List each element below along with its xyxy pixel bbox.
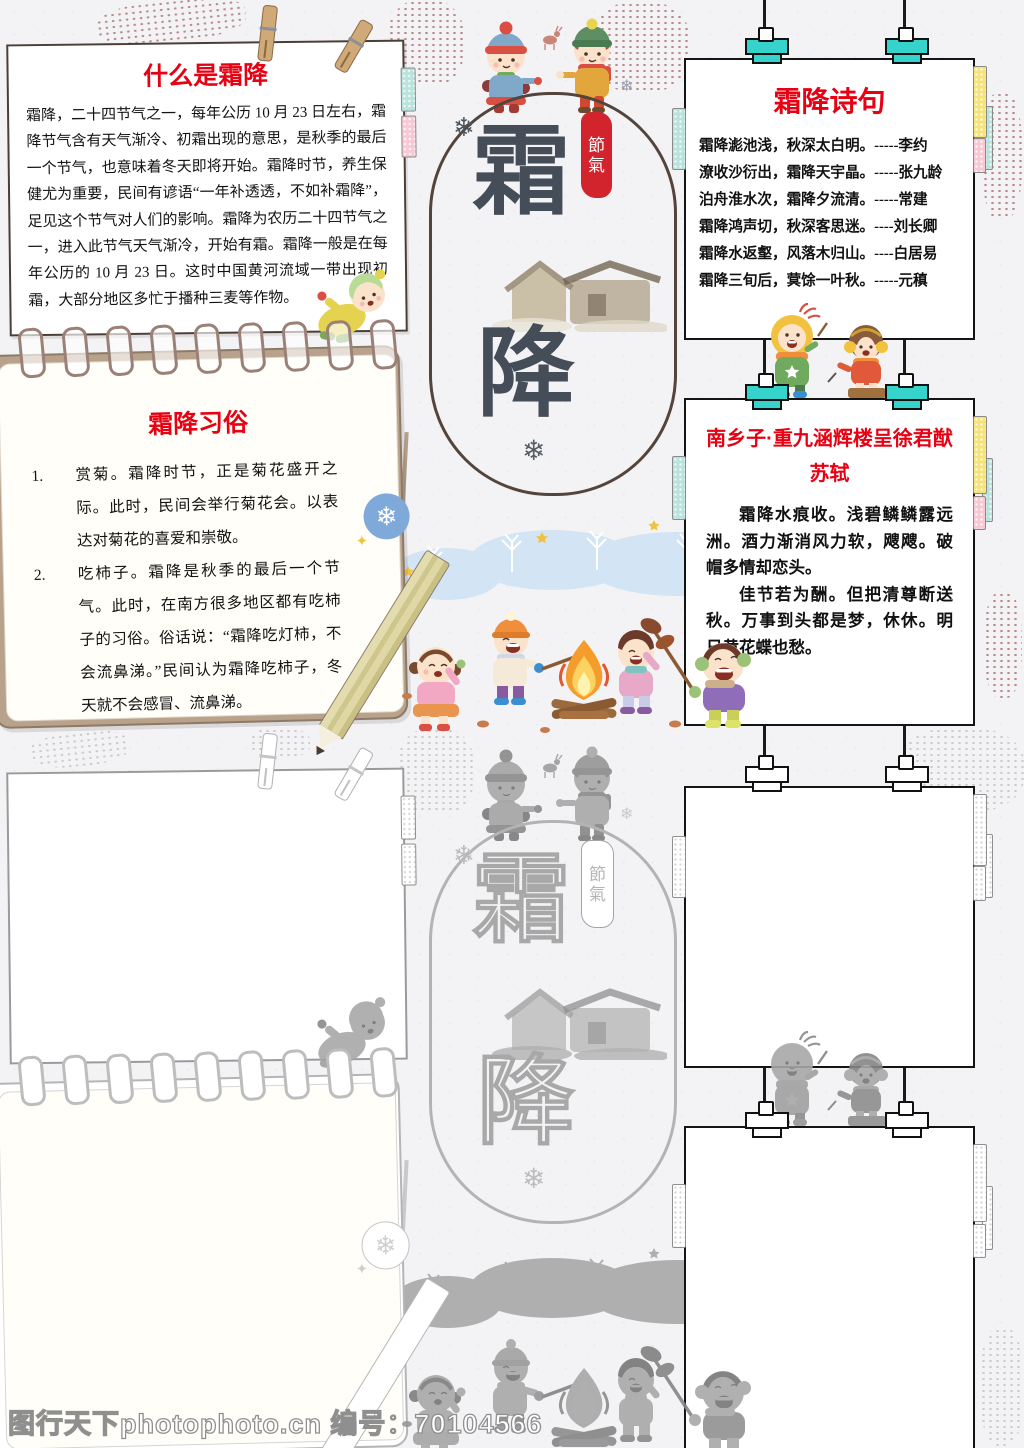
title-char-jiang: 降 — [477, 324, 575, 422]
poems-title: 霜降诗句 — [686, 80, 973, 120]
binder-clip-icon — [885, 384, 929, 401]
teal-tab — [672, 456, 686, 520]
shuangjiang-poster: ❄ ❄ ❄ 什么是霜降 霜降，二十四节气之一，每年公历 10 月 23 日左右，… — [0, 0, 1024, 1448]
poem-line: 霜降三旬后，蓂馀一叶秋。-----元稹 — [699, 268, 973, 295]
title-char-jiang-outline: 降 — [477, 1052, 575, 1150]
tab-outline — [401, 795, 417, 839]
jieqi-seal: 節 氣 — [581, 112, 612, 198]
customs-title: 霜降习俗 — [0, 399, 397, 445]
branch-scribble — [28, 727, 131, 771]
poems-box-outline — [684, 786, 975, 1068]
tab-outline — [973, 866, 986, 901]
poems-box: 霜降诗句 霜降滮池浅，秋深太白明。-----李约 潦收沙衍出，霜降天宇晶。---… — [684, 58, 975, 340]
clothespin-icon — [333, 746, 374, 802]
pink-tab — [401, 115, 417, 157]
list-item: 2. 吃柿子。霜降是秋季的最后一个节气。此时，在南方很多地区都有吃柿子的习俗。俗… — [33, 551, 383, 724]
binder-clip-icon — [745, 38, 789, 55]
yellow-tab — [973, 416, 987, 494]
colored-half: ❄ ❄ ❄ 什么是霜降 霜降，二十四节气之一，每年公历 10 月 23 日左右，… — [0, 0, 1024, 728]
lineart-half: ❄ ❄ ❄ ✦ ❄ 霜 節 氣 — [0, 728, 1024, 1448]
pink-tab — [973, 496, 986, 530]
notebook-paper — [0, 1082, 404, 1448]
star-icon: ✦ — [355, 1260, 368, 1278]
title-char-shuang-outline: 霜 — [472, 850, 570, 948]
poem-line: 霜降鸿声切，秋深客思迷。----刘长卿 — [699, 214, 973, 241]
snowflake-icon: ❄ — [522, 1162, 545, 1195]
poem-line: 潦收沙衍出，霜降天宇晶。-----张九龄 — [699, 160, 973, 187]
spiral-rings — [19, 319, 397, 378]
campfire-kids-illustration — [393, 548, 798, 734]
tab-outline — [672, 836, 686, 898]
snowflake-icon: ❄ — [522, 434, 545, 467]
binder-clip-icon — [745, 384, 789, 401]
pink-tab — [973, 138, 986, 173]
tab-outline — [973, 1144, 987, 1222]
binder-clip-icon — [885, 766, 929, 783]
poem-line: 霜降水返壑，风落木归山。----白居易 — [699, 241, 973, 268]
binder-clip-icon — [745, 766, 789, 783]
notebook-paper: 霜降习俗 1. 赏菊。霜降时节，正是菊花盛开之际。此时，民间会举行菊花会。以表达… — [0, 354, 404, 722]
what-is-shuangjiang-box-outline — [6, 768, 408, 1065]
photophoto-watermark: 图行天下photophoto.cn 编号：70104566 — [8, 1402, 543, 1441]
tab-outline — [401, 843, 417, 885]
binder-clip-icon — [885, 38, 929, 55]
teal-tab — [672, 108, 686, 170]
jieqi-seal-outline: 節 氣 — [581, 840, 614, 928]
tab-outline — [672, 1184, 686, 1248]
songci-title: 南乡子·重九涵辉楼呈徐君猷 — [686, 424, 973, 455]
title-char-shuang: 霜 — [472, 122, 570, 220]
branch-scribble — [980, 1328, 1024, 1446]
poem-line: 霜降滮池浅，秋深太白明。-----李约 — [699, 133, 973, 160]
yellow-tab — [973, 66, 987, 138]
customs-notebook-outline: ❄ ✦ — [0, 1073, 409, 1448]
tab-outline — [973, 1224, 986, 1258]
spiral-rings — [19, 1047, 397, 1106]
songci-author: 苏轼 — [686, 459, 973, 490]
list-item: 1. 赏菊。霜降时节，正是菊花盛开之际。此时，民间会举行菊花会。以表达对菊花的喜… — [31, 452, 379, 559]
poem-lines: 霜降滮池浅，秋深太白明。-----李约 潦收沙衍出，霜降天宇晶。-----张九龄… — [686, 133, 973, 295]
poem-line: 泊舟淮水次，霜降夕流清。-----常建 — [699, 187, 973, 214]
clothespin-icon — [257, 5, 278, 62]
star-icon: ✦ — [355, 532, 368, 550]
binder-clip-icon — [885, 1112, 929, 1129]
customs-notebook: 霜降习俗 1. 赏菊。霜降时节，正是菊花盛开之际。此时，民间会举行菊花会。以表达… — [0, 345, 409, 729]
teal-tab — [401, 67, 417, 111]
what-is-shuangjiang-box: 什么是霜降 霜降，二十四节气之一，每年公历 10 月 23 日左右，霜降节气含有… — [6, 40, 408, 337]
branch-scribble — [984, 592, 1022, 698]
customs-list: 1. 赏菊。霜降时节，正是菊花盛开之际。此时，民间会举行菊花会。以表达对菊花的喜… — [31, 452, 383, 724]
binder-clip-icon — [745, 1112, 789, 1129]
tab-outline — [973, 794, 987, 866]
